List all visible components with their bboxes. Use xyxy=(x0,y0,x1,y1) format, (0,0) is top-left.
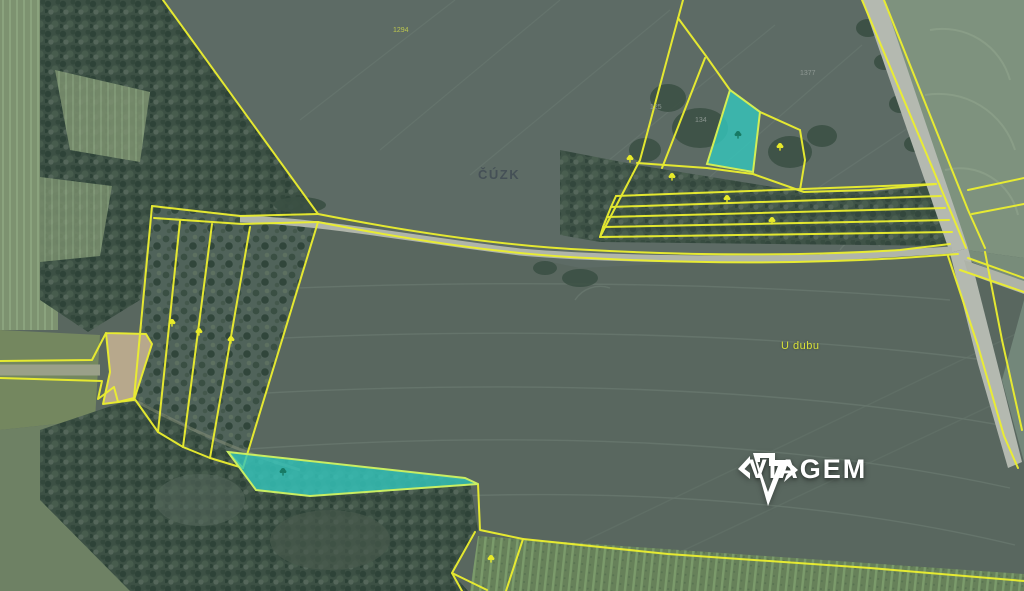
forest-blob xyxy=(270,510,390,570)
aerial-map-canvas[interactable]: ČÚZK U dubu 1294 1377 125 134 VIAGEM xyxy=(0,0,1024,591)
gem-icon xyxy=(728,452,808,510)
viagem-logo: VIAGEM xyxy=(728,452,888,485)
aerial-map-layers xyxy=(0,0,1024,591)
forest-clearing-2 xyxy=(0,172,112,266)
forest-blob xyxy=(155,474,245,526)
